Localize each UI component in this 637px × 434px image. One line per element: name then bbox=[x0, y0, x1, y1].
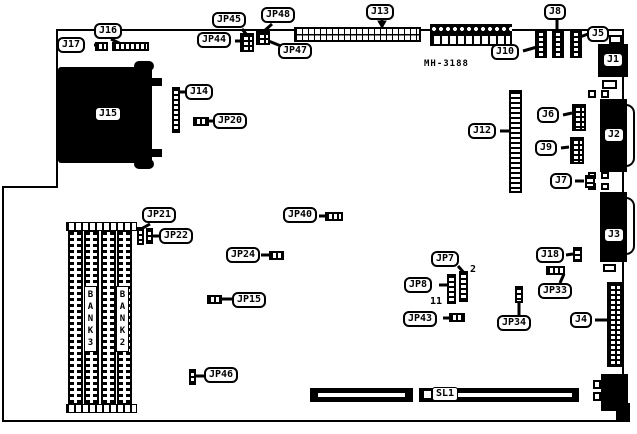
callout-jp40: JP40 bbox=[283, 207, 317, 223]
jp34-jumper bbox=[515, 286, 523, 303]
callout-jp44: JP44 bbox=[197, 32, 231, 48]
callout-j16: J16 bbox=[94, 23, 122, 39]
j14-connector bbox=[172, 87, 180, 133]
j4-connector bbox=[607, 282, 622, 367]
callout-jp43: JP43 bbox=[403, 311, 437, 327]
j15-corner-bump-top bbox=[134, 61, 154, 71]
callout-jp45: JP45 bbox=[212, 12, 246, 28]
callout-j13: J13 bbox=[366, 4, 394, 20]
j17-jumper bbox=[95, 42, 108, 51]
callout-jp34: JP34 bbox=[497, 315, 531, 331]
j10-dip-top bbox=[430, 24, 512, 34]
callout-jp20: JP20 bbox=[213, 113, 247, 129]
callout-jp7: JP7 bbox=[431, 251, 459, 267]
callout-j8: J8 bbox=[544, 4, 566, 20]
j6-header bbox=[572, 104, 586, 131]
jp24-jumper bbox=[269, 251, 284, 260]
j12-connector bbox=[509, 90, 522, 193]
simm-socket-3 bbox=[101, 230, 116, 405]
callout-j10: J10 bbox=[491, 44, 519, 60]
power-connector bbox=[601, 374, 628, 411]
expansion-slot-left bbox=[310, 388, 413, 402]
jp44-jp45-jumper-block bbox=[240, 33, 254, 52]
callout-j17: J17 bbox=[57, 37, 85, 53]
board-part-number: MH-3188 bbox=[424, 59, 469, 69]
j15-corner-bump-bottom bbox=[134, 159, 154, 169]
mount-pad-2 bbox=[601, 90, 609, 98]
j16-connector bbox=[112, 42, 149, 51]
edge-pad-below-j3 bbox=[603, 264, 616, 272]
callout-j7: J7 bbox=[550, 173, 572, 189]
label-bank3: BANK3 bbox=[84, 286, 97, 352]
edge-pad-above-j1 bbox=[609, 35, 622, 44]
mount-pad-1 bbox=[588, 90, 596, 98]
callout-j9: J9 bbox=[535, 140, 557, 156]
jp22-jumper bbox=[146, 228, 153, 244]
simm-clip-row-bottom bbox=[66, 404, 137, 413]
jp8-pin11-annotation: 11 bbox=[430, 296, 442, 307]
slot-left-inner bbox=[318, 393, 405, 397]
jp40-jumper bbox=[325, 212, 343, 221]
j8-header bbox=[552, 29, 564, 58]
callout-jp15: JP15 bbox=[232, 292, 266, 308]
mount-pad-6 bbox=[601, 183, 609, 190]
j5-header bbox=[570, 29, 582, 58]
callout-jp22: JP22 bbox=[159, 228, 193, 244]
callout-j5: J5 bbox=[587, 26, 609, 42]
label-sl1: SL1 bbox=[432, 387, 458, 401]
callout-jp8: JP8 bbox=[404, 277, 432, 293]
jp7-pin2-annotation: 2 bbox=[470, 264, 476, 275]
j7-jumper bbox=[585, 175, 595, 188]
jp33-jumper bbox=[546, 266, 565, 275]
edge-pad-below-j1 bbox=[602, 80, 617, 89]
label-j2: J2 bbox=[604, 128, 624, 142]
sl1-key-square bbox=[424, 391, 431, 398]
mount-pad-4 bbox=[601, 172, 609, 179]
callout-j4: J4 bbox=[570, 312, 592, 328]
label-j3: J3 bbox=[604, 228, 624, 242]
jp21-jumper bbox=[137, 227, 144, 245]
label-j15: J15 bbox=[95, 107, 121, 121]
jp46-jumper bbox=[189, 369, 196, 385]
jp47-jp48-jumper-block bbox=[256, 31, 270, 45]
jp8-header bbox=[447, 274, 456, 304]
label-bank2: BANK2 bbox=[116, 286, 129, 352]
callout-j12: J12 bbox=[468, 123, 496, 139]
power-tab-1 bbox=[593, 380, 601, 389]
j15-tab-bottom bbox=[150, 149, 162, 157]
callout-j6: J6 bbox=[537, 107, 559, 123]
label-j1: J1 bbox=[603, 53, 623, 67]
port-connector-j3 bbox=[600, 192, 627, 262]
callout-j18: J18 bbox=[536, 247, 564, 263]
jp43-jumper bbox=[449, 313, 465, 322]
callout-jp24: JP24 bbox=[226, 247, 260, 263]
j9-header bbox=[570, 137, 584, 164]
jp20-jumper bbox=[193, 117, 209, 126]
motherboard-layout-diagram: J15 J1 J2 J3 bbox=[0, 0, 637, 434]
j18-jumper bbox=[573, 247, 582, 262]
callout-jp46: JP46 bbox=[204, 367, 238, 383]
j10-header bbox=[535, 29, 547, 58]
jp15-jumper bbox=[207, 295, 222, 304]
j15-tab-top bbox=[150, 78, 162, 86]
callout-jp48: JP48 bbox=[261, 7, 295, 23]
callout-jp47: JP47 bbox=[278, 43, 312, 59]
power-tab-2 bbox=[593, 392, 601, 401]
jp7-header bbox=[459, 271, 468, 302]
callout-j14: J14 bbox=[185, 84, 213, 100]
callout-jp21: JP21 bbox=[142, 207, 176, 223]
simm-socket-1 bbox=[68, 230, 83, 405]
j13-connector bbox=[294, 27, 421, 42]
callout-jp33: JP33 bbox=[538, 283, 572, 299]
